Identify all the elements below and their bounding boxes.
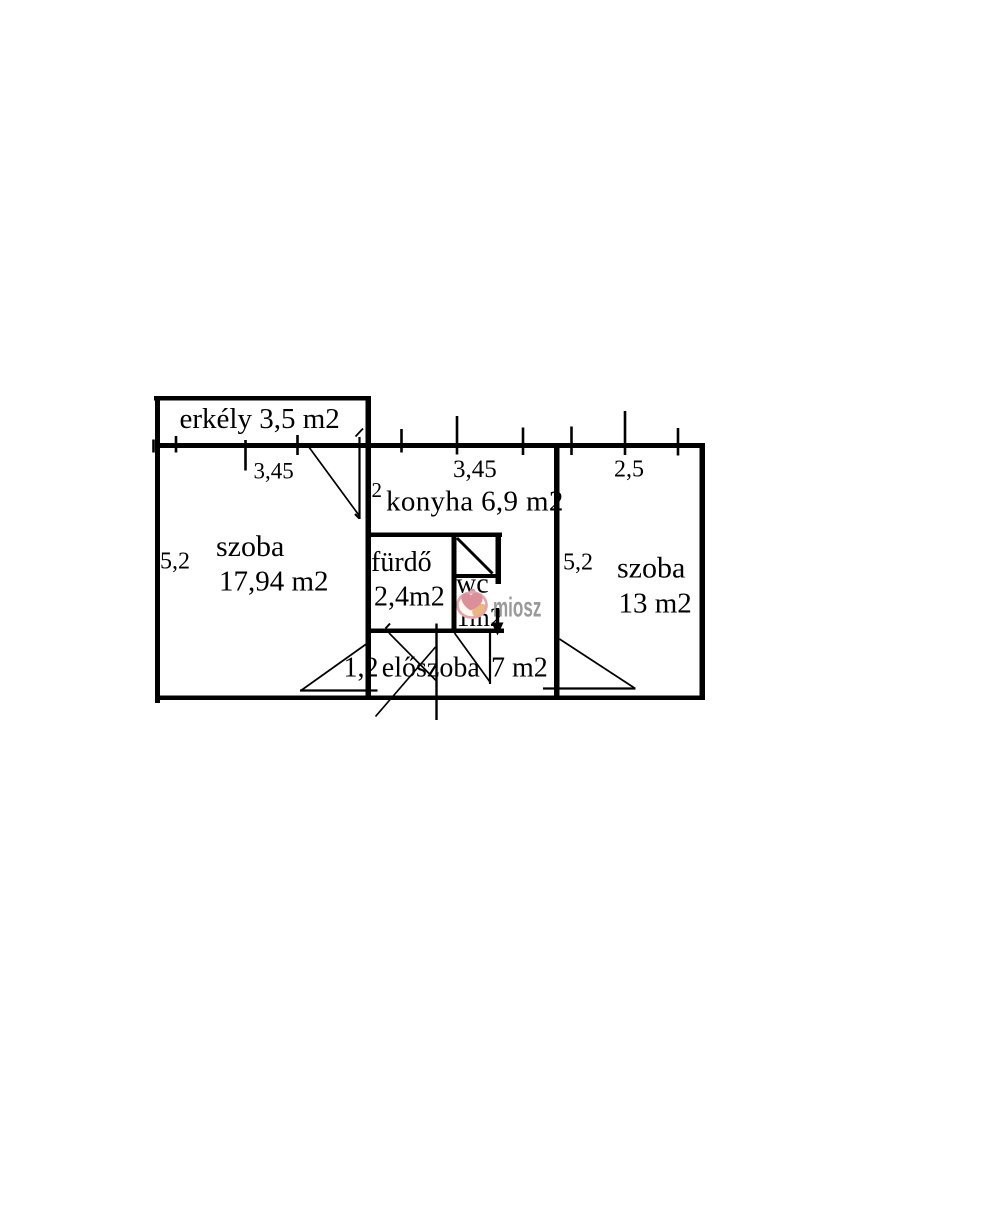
svg-text:3,45: 3,45 (254, 459, 294, 484)
svg-text:szoba: szoba (617, 552, 685, 585)
svg-text:szoba: szoba (216, 530, 284, 563)
svg-text:fürdő: fürdő (371, 547, 432, 578)
svg-text:7 m2: 7 m2 (491, 653, 548, 684)
svg-text:17,94 m2: 17,94 m2 (219, 566, 329, 598)
svg-text:2,5: 2,5 (614, 457, 644, 483)
svg-text:5,2: 5,2 (160, 549, 190, 575)
svg-text:2: 2 (372, 478, 383, 502)
svg-text:13 m2: 13 m2 (619, 588, 692, 620)
svg-text:konyha 6,9 m2: konyha 6,9 m2 (386, 486, 564, 518)
svg-text:5,2: 5,2 (563, 550, 593, 576)
svg-text:miosz: miosz (493, 591, 541, 622)
svg-text:előszoba: előszoba (382, 653, 481, 684)
svg-text:3,45: 3,45 (453, 456, 497, 483)
svg-text:erkély 3,5 m2: erkély 3,5 m2 (180, 403, 340, 435)
svg-text:2,4m2: 2,4m2 (374, 582, 445, 613)
